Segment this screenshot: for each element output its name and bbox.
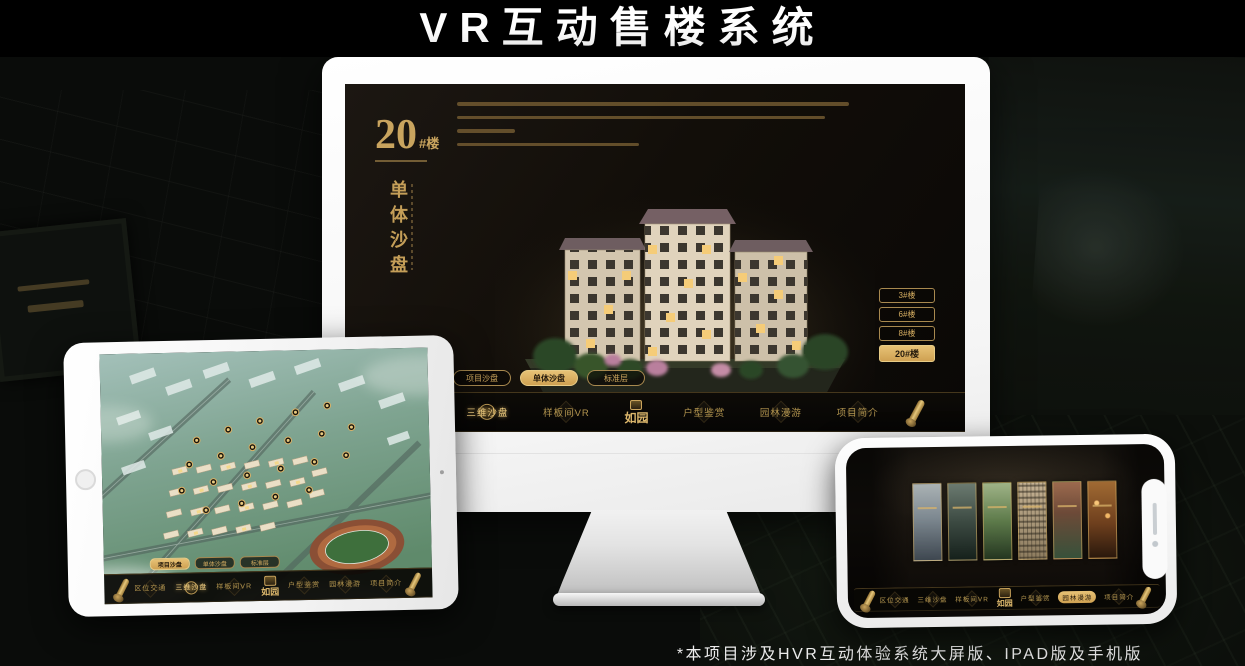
phone-mockup: 区位交通 三维沙盘 样板间VR 如园 户型鉴赏 园林漫游 项目简介 <box>835 434 1178 629</box>
nav-item-unit-gallery[interactable]: 户型鉴赏 <box>1020 592 1050 602</box>
nav-item-project-intro[interactable]: 项目简介 <box>1104 591 1134 601</box>
nav-item-project-intro[interactable]: 项目简介 <box>837 405 879 419</box>
footnote-text: *本项目涉及HVR互动体验系统大屏版、IPAD版及手机版 <box>677 640 1143 664</box>
scroll-icon[interactable] <box>115 578 130 600</box>
vertical-deco-line <box>411 184 413 270</box>
description-text-lines <box>457 102 859 156</box>
nav-item-showroom-vr[interactable]: 样板间VR <box>955 593 989 603</box>
speaker-slit-icon <box>1152 503 1156 535</box>
camera-dot-icon <box>440 470 444 474</box>
floor-button-8[interactable]: 8#楼 <box>879 326 935 341</box>
nav-item-garden-roam[interactable]: 园林漫游 <box>760 405 802 419</box>
building-number-suffix: #楼 <box>419 136 439 151</box>
gallery-panel[interactable] <box>982 482 1012 560</box>
logo-emblem-icon <box>264 575 276 585</box>
home-button[interactable] <box>75 469 96 490</box>
nav-item-3d-sandtable[interactable]: 三维沙盘 <box>917 594 947 604</box>
panel-caption <box>1058 505 1077 507</box>
logo-emblem-icon <box>630 400 642 410</box>
floor-button-20[interactable]: 20#楼 <box>879 345 935 362</box>
brand-logo-text: 如园 <box>624 412 648 424</box>
panel-caption <box>953 506 972 508</box>
building-3d-render[interactable] <box>495 154 875 404</box>
scroll-icon[interactable] <box>908 399 926 425</box>
ipad-mockup: 项目沙盘 单体沙盘 标准层 区位交通 三维沙盘 样板间VR 如园 户型鉴赏 园林… <box>63 335 459 617</box>
nav-item-project-intro[interactable]: 项目简介 <box>370 578 402 589</box>
description-line <box>457 129 515 133</box>
gallery-panel[interactable] <box>912 483 942 561</box>
camera-dot-icon <box>1152 541 1158 547</box>
background-aerial-river <box>1030 164 1191 334</box>
page-title: VR互动售楼系统 <box>0 0 1245 57</box>
nav-item-showroom-vr[interactable]: 样板间VR <box>216 581 252 592</box>
monitor-stand <box>556 510 762 602</box>
brand-logo: 如园 <box>624 400 648 424</box>
monitor-subtabs: 项目沙盘 单体沙盘 标准层 <box>453 370 645 386</box>
logo-emblem-icon <box>999 588 1011 598</box>
nav-item-location-traffic[interactable]: 区位交通 <box>880 594 910 604</box>
building-number: 20 <box>375 112 417 158</box>
subtab-project-sandtable[interactable]: 项目沙盘 <box>150 558 190 571</box>
monitor-stand-neck <box>556 510 762 598</box>
nav-item-location-traffic[interactable]: 区位交通 <box>134 583 166 594</box>
gallery-panel[interactable] <box>1052 481 1082 559</box>
background-plaque-text <box>27 300 83 313</box>
gallery-panel[interactable] <box>1017 481 1047 559</box>
panorama-gallery <box>912 480 1117 561</box>
background-plaque-text <box>17 279 89 291</box>
floor-button-3[interactable]: 3#楼 <box>879 288 935 303</box>
subtab-single-sandtable[interactable]: 单体沙盘 <box>195 557 235 570</box>
building-subtitle-vertical: 单体沙盘 <box>385 180 411 280</box>
building-headline: 20#楼 <box>375 114 439 162</box>
subtab-standard-floor[interactable]: 标准层 <box>240 556 280 569</box>
brand-logo: 如园 <box>261 575 279 596</box>
panel-caption <box>918 507 937 509</box>
scroll-icon[interactable] <box>407 572 422 594</box>
description-line <box>457 116 825 120</box>
brand-logo-text: 如园 <box>261 587 279 596</box>
floor-button-group: 3#楼 6#楼 8#楼 20#楼 <box>879 288 935 362</box>
nav-item-3d-sandtable[interactable]: 三维沙盘 <box>466 405 508 419</box>
nav-item-garden-roam[interactable]: 园林漫游 <box>329 579 361 590</box>
scroll-icon[interactable] <box>1138 586 1152 607</box>
subtab-standard-floor[interactable]: 标准层 <box>587 370 645 386</box>
gallery-panel[interactable] <box>1087 480 1117 558</box>
phone-notch <box>1141 479 1167 579</box>
ipad-nav-bar: 区位交通 三维沙盘 样板间VR 如园 户型鉴赏 园林漫游 项目简介 <box>104 567 433 604</box>
panel-caption <box>1093 504 1112 506</box>
subtab-project-sandtable[interactable]: 项目沙盘 <box>453 370 511 386</box>
page: VR互动售楼系统 20#楼 单体沙盘 <box>0 0 1245 666</box>
nav-item-showroom-vr[interactable]: 样板间VR <box>543 405 590 419</box>
nav-item-3d-sandtable[interactable]: 三维沙盘 <box>175 582 207 593</box>
brand-logo-text: 如园 <box>997 600 1013 608</box>
panel-caption <box>1023 505 1042 507</box>
subtab-single-sandtable[interactable]: 单体沙盘 <box>520 370 578 386</box>
gold-rule <box>375 160 427 162</box>
gallery-panel[interactable] <box>947 482 977 560</box>
description-line <box>457 143 639 147</box>
nav-item-unit-gallery[interactable]: 户型鉴赏 <box>683 405 725 419</box>
monitor-stand-base <box>553 593 765 606</box>
nav-item-garden-roam[interactable]: 园林漫游 <box>1058 591 1096 604</box>
phone-screen: 区位交通 三维沙盘 样板间VR 如园 户型鉴赏 园林漫游 项目简介 <box>846 444 1166 618</box>
background-collage <box>961 40 1245 480</box>
panel-caption <box>988 506 1007 508</box>
description-line <box>457 102 849 106</box>
scroll-icon[interactable] <box>862 590 876 611</box>
floor-button-6[interactable]: 6#楼 <box>879 307 935 322</box>
nav-item-unit-gallery[interactable]: 户型鉴赏 <box>288 580 320 591</box>
phone-nav-bar: 区位交通 三维沙盘 样板间VR 如园 户型鉴赏 园林漫游 项目简介 <box>854 584 1160 612</box>
brand-logo: 如园 <box>997 588 1013 608</box>
ipad-screen: 项目沙盘 单体沙盘 标准层 区位交通 三维沙盘 样板间VR 如园 户型鉴赏 园林… <box>99 347 432 604</box>
